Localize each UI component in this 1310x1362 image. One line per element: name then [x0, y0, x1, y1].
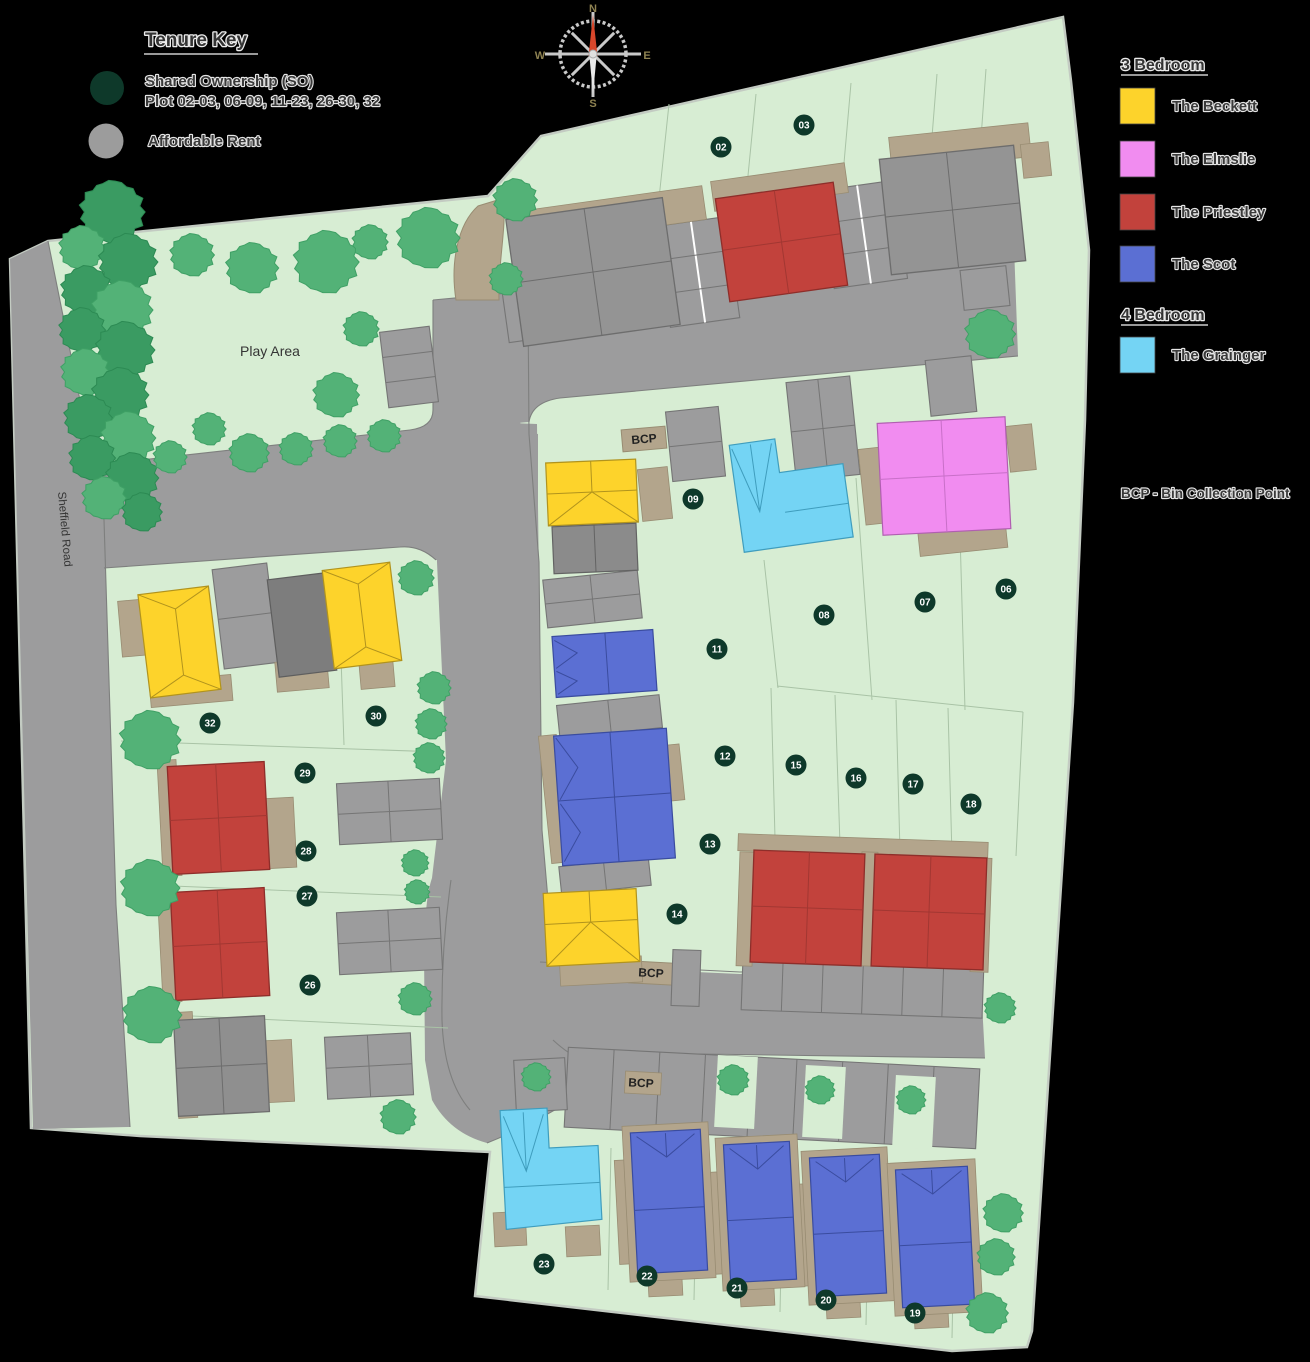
svg-text:15: 15: [790, 761, 802, 772]
svg-text:16: 16: [850, 774, 862, 785]
svg-text:BCP - Bin Collection Point: BCP - Bin Collection Point: [1121, 486, 1290, 501]
svg-text:19: 19: [909, 1309, 921, 1320]
svg-text:06: 06: [1000, 585, 1012, 596]
svg-text:4 Bedroom: 4 Bedroom: [1121, 307, 1205, 324]
svg-text:18: 18: [965, 800, 977, 811]
svg-text:BCP: BCP: [638, 965, 664, 980]
svg-text:02: 02: [715, 143, 727, 154]
svg-text:E: E: [643, 50, 650, 62]
svg-text:29: 29: [299, 769, 311, 780]
svg-text:N: N: [589, 3, 597, 15]
svg-text:26: 26: [304, 981, 316, 992]
svg-text:11: 11: [712, 645, 723, 656]
svg-text:32: 32: [204, 719, 216, 730]
svg-text:07: 07: [919, 598, 931, 609]
svg-text:W: W: [535, 50, 546, 62]
svg-text:28: 28: [300, 847, 312, 858]
svg-text:Play Area: Play Area: [240, 343, 300, 359]
svg-text:The Priestley: The Priestley: [1172, 204, 1266, 221]
svg-text:30: 30: [370, 712, 382, 723]
svg-text:Plot 02-03, 06-09, 11-23, 26-3: Plot 02-03, 06-09, 11-23, 26-30, 32: [145, 93, 380, 110]
svg-text:20: 20: [820, 1296, 832, 1307]
svg-text:3 Bedroom: 3 Bedroom: [1121, 57, 1205, 74]
svg-text:BCP: BCP: [628, 1075, 654, 1090]
svg-text:13: 13: [704, 840, 716, 851]
svg-text:The Elmslie: The Elmslie: [1172, 151, 1255, 168]
svg-text:23: 23: [538, 1260, 550, 1271]
svg-text:22: 22: [641, 1272, 653, 1283]
svg-text:09: 09: [687, 495, 699, 506]
svg-text:The Scot: The Scot: [1172, 256, 1235, 273]
svg-text:03: 03: [798, 121, 810, 132]
svg-text:14: 14: [671, 910, 683, 921]
svg-text:BCP: BCP: [631, 431, 657, 447]
svg-text:Affordable Rent: Affordable Rent: [148, 133, 261, 150]
svg-text:08: 08: [818, 611, 830, 622]
svg-text:Shared Ownership (SO): Shared Ownership (SO): [145, 73, 313, 90]
svg-text:S: S: [589, 98, 596, 110]
svg-text:The Beckett: The Beckett: [1172, 98, 1257, 115]
svg-text:27: 27: [301, 892, 313, 903]
svg-text:12: 12: [719, 752, 731, 763]
svg-text:Tenure Key: Tenure Key: [145, 30, 248, 51]
svg-text:The Grainger: The Grainger: [1172, 347, 1266, 364]
svg-text:21: 21: [731, 1284, 743, 1295]
svg-text:17: 17: [907, 780, 919, 791]
